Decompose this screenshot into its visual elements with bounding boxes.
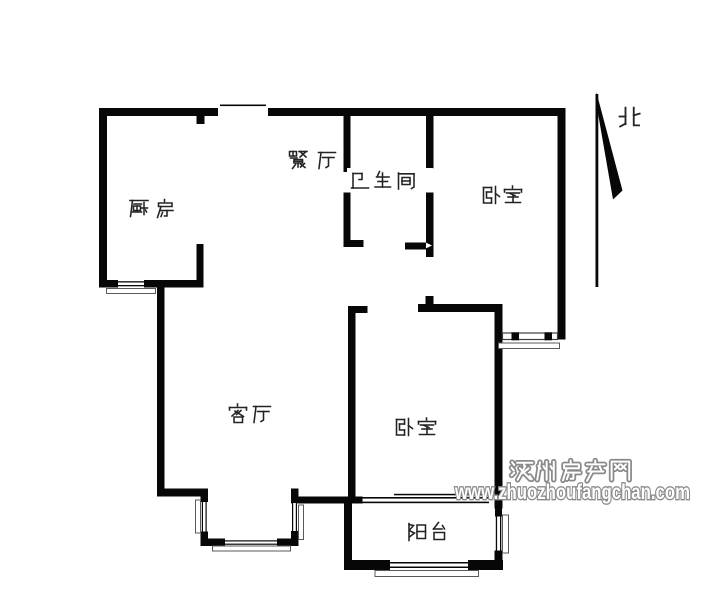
svg-text:www.zhuozhoufangchan.com: www.zhuozhoufangchan.com	[454, 480, 690, 504]
